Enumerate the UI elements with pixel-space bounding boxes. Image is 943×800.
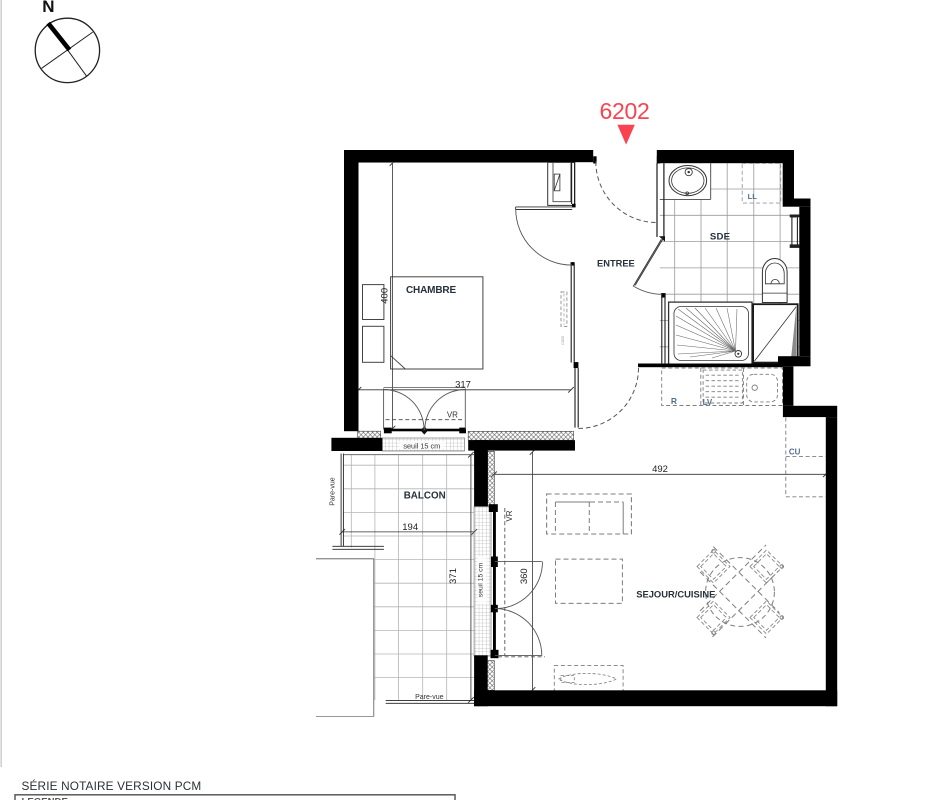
svg-text:194: 194	[402, 522, 418, 533]
svg-text:seuil 15 cm: seuil 15 cm	[403, 441, 440, 450]
svg-text:SÉRIE NOTAIRE VERSION PCM: SÉRIE NOTAIRE VERSION PCM	[22, 779, 202, 793]
svg-text:LV: LV	[703, 398, 713, 407]
svg-text:400: 400	[379, 288, 390, 304]
svg-text:C600: C600	[561, 336, 565, 345]
svg-text:LL: LL	[748, 192, 758, 201]
svg-text:SEJOUR/CUISINE: SEJOUR/CUISINE	[636, 588, 715, 599]
svg-text:360: 360	[519, 568, 530, 584]
svg-text:317: 317	[455, 380, 471, 391]
svg-text:CHAMBRE: CHAMBRE	[406, 285, 457, 296]
svg-text:BALCON: BALCON	[404, 490, 446, 501]
svg-text:Pare-vue: Pare-vue	[415, 694, 444, 701]
svg-text:371: 371	[448, 568, 459, 584]
svg-text:seuil 15 cm: seuil 15 cm	[477, 562, 484, 597]
svg-text:VR: VR	[447, 411, 458, 420]
svg-text:6202: 6202	[600, 98, 650, 124]
svg-text:Pare-vue: Pare-vue	[330, 477, 337, 506]
svg-text:492: 492	[652, 464, 668, 475]
svg-text:VR: VR	[505, 510, 514, 521]
svg-text:SDE: SDE	[710, 232, 731, 243]
svg-text:ENTREE: ENTREE	[597, 259, 635, 269]
svg-text:N: N	[42, 0, 54, 16]
svg-text:LEGENDE: LEGENDE	[22, 797, 69, 800]
svg-text:R: R	[671, 396, 677, 406]
svg-text:CU: CU	[789, 448, 801, 457]
